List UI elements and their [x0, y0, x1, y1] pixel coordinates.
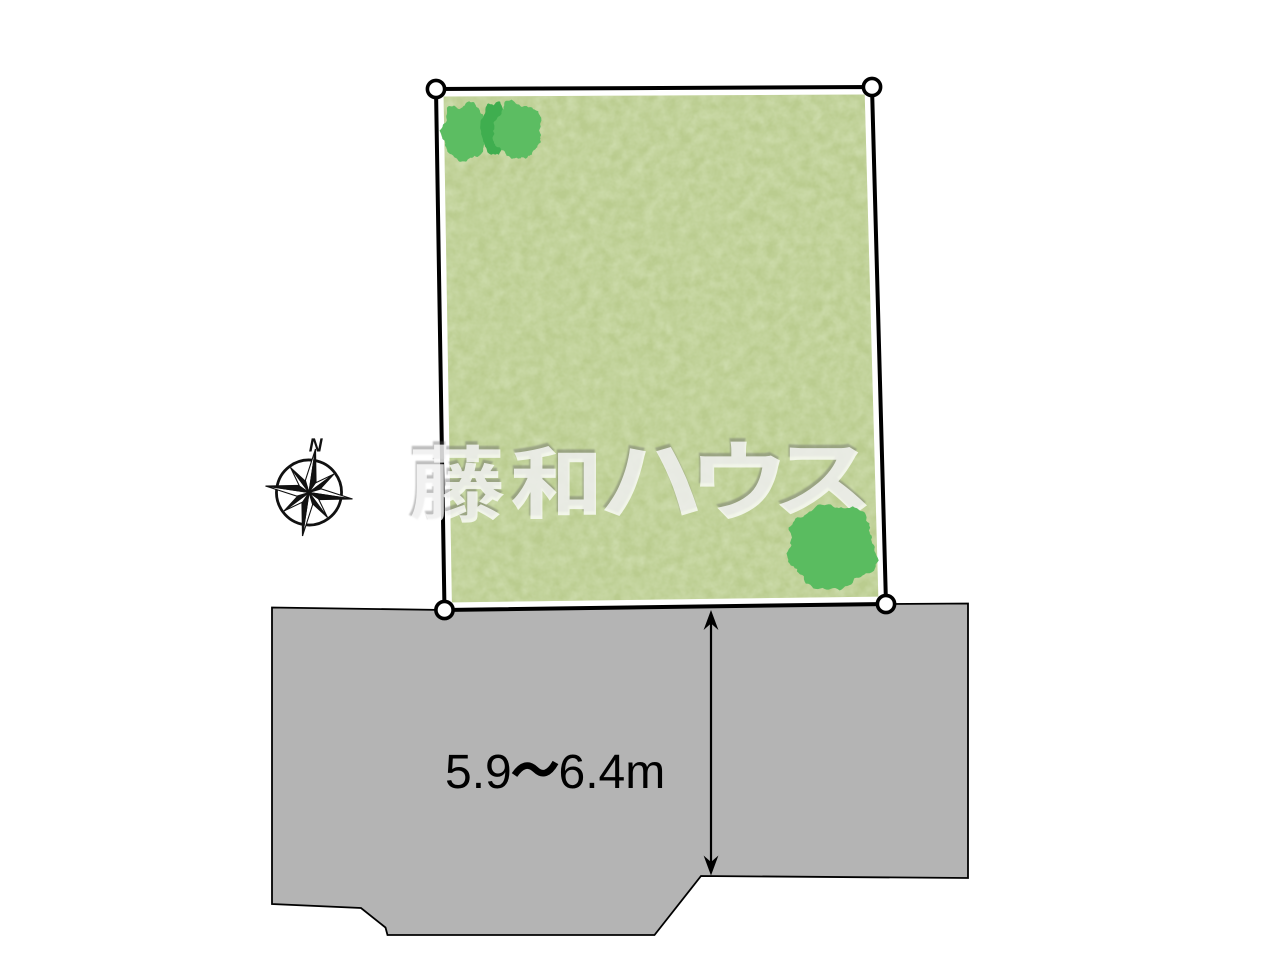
svg-text:5.9: 5.9: [445, 746, 512, 799]
svg-text:6.4m: 6.4m: [559, 746, 666, 799]
